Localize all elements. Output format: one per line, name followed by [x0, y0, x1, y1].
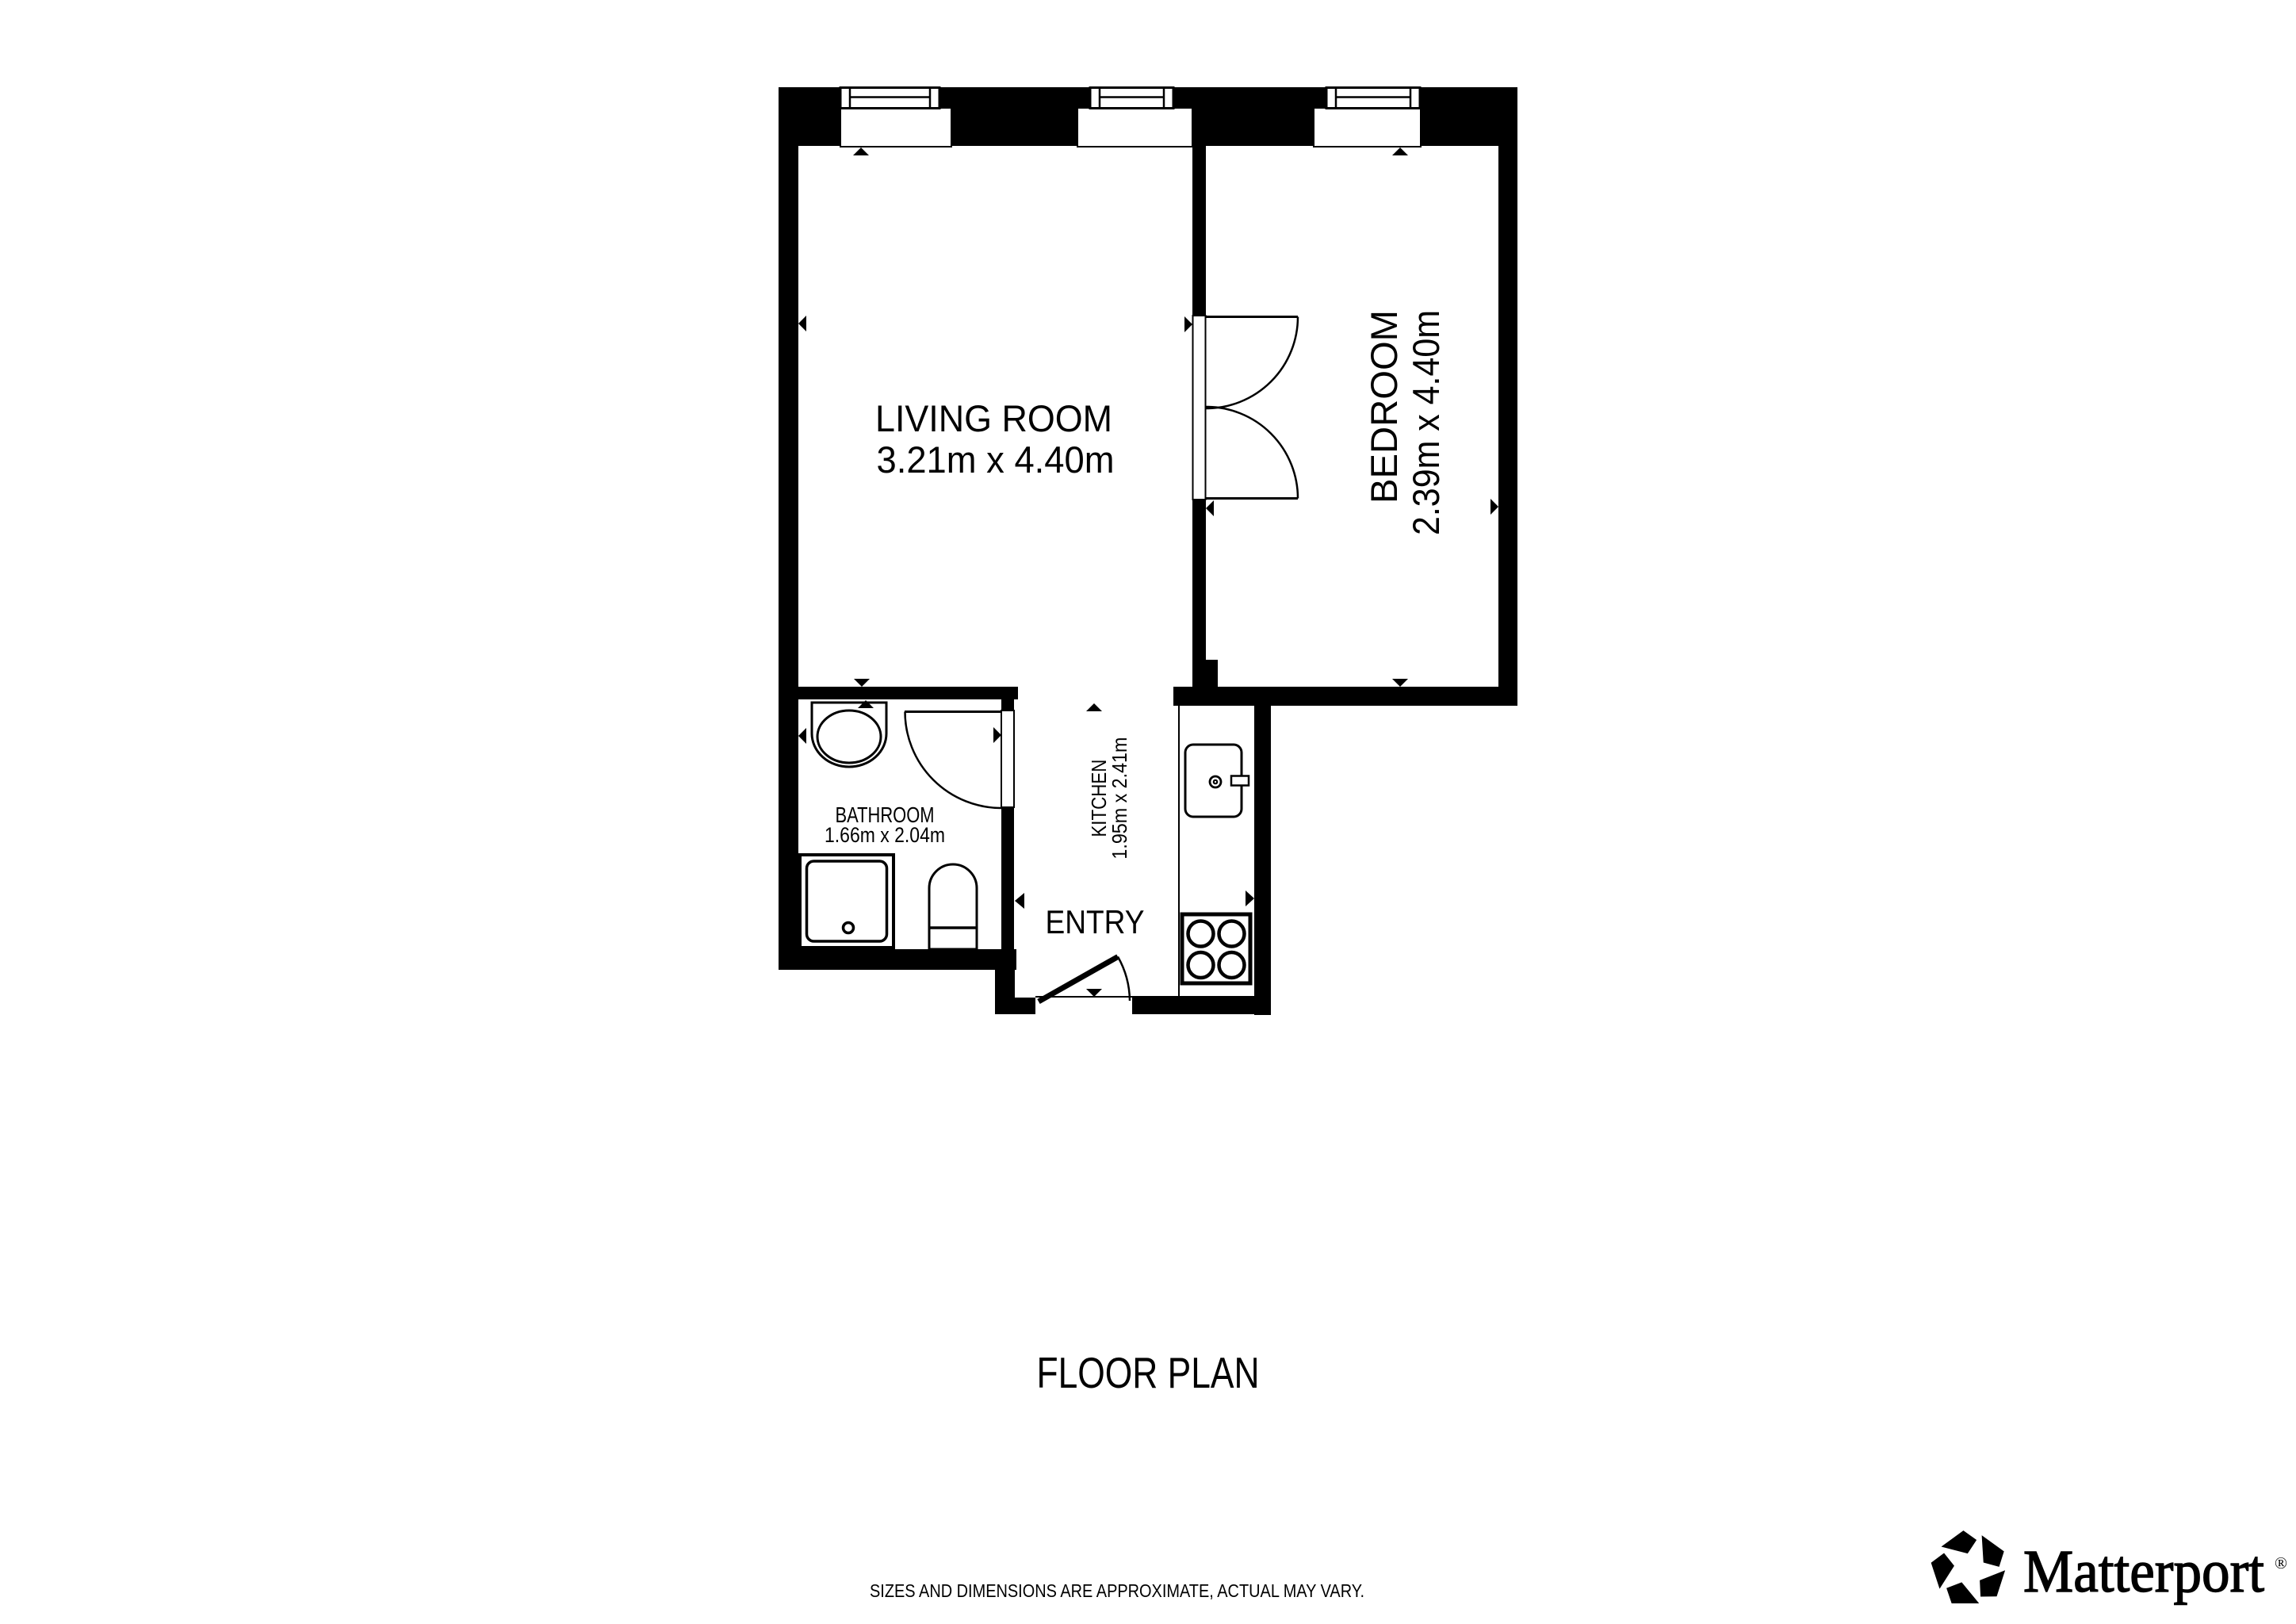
- svg-text:FLOOR PLAN: FLOOR PLAN: [1037, 1348, 1260, 1397]
- svg-text:SIZES AND DIMENSIONS ARE APPRO: SIZES AND DIMENSIONS ARE APPROXIMATE, AC…: [870, 1580, 1364, 1601]
- svg-text:®: ®: [2275, 1553, 2287, 1572]
- svg-text:Matterport: Matterport: [2023, 1538, 2264, 1605]
- svg-text:1.66m x 2.04m: 1.66m x 2.04m: [825, 823, 945, 847]
- svg-text:LIVING ROOM: LIVING ROOM: [875, 397, 1112, 439]
- svg-text:1.95m x 2.41m: 1.95m x 2.41m: [1108, 737, 1131, 860]
- svg-text:2.39m x 4.40m: 2.39m x 4.40m: [1405, 310, 1447, 535]
- svg-text:3.21m x 4.40m: 3.21m x 4.40m: [877, 439, 1115, 481]
- svg-text:BEDROOM: BEDROOM: [1363, 310, 1405, 504]
- svg-text:ENTRY: ENTRY: [1046, 903, 1145, 940]
